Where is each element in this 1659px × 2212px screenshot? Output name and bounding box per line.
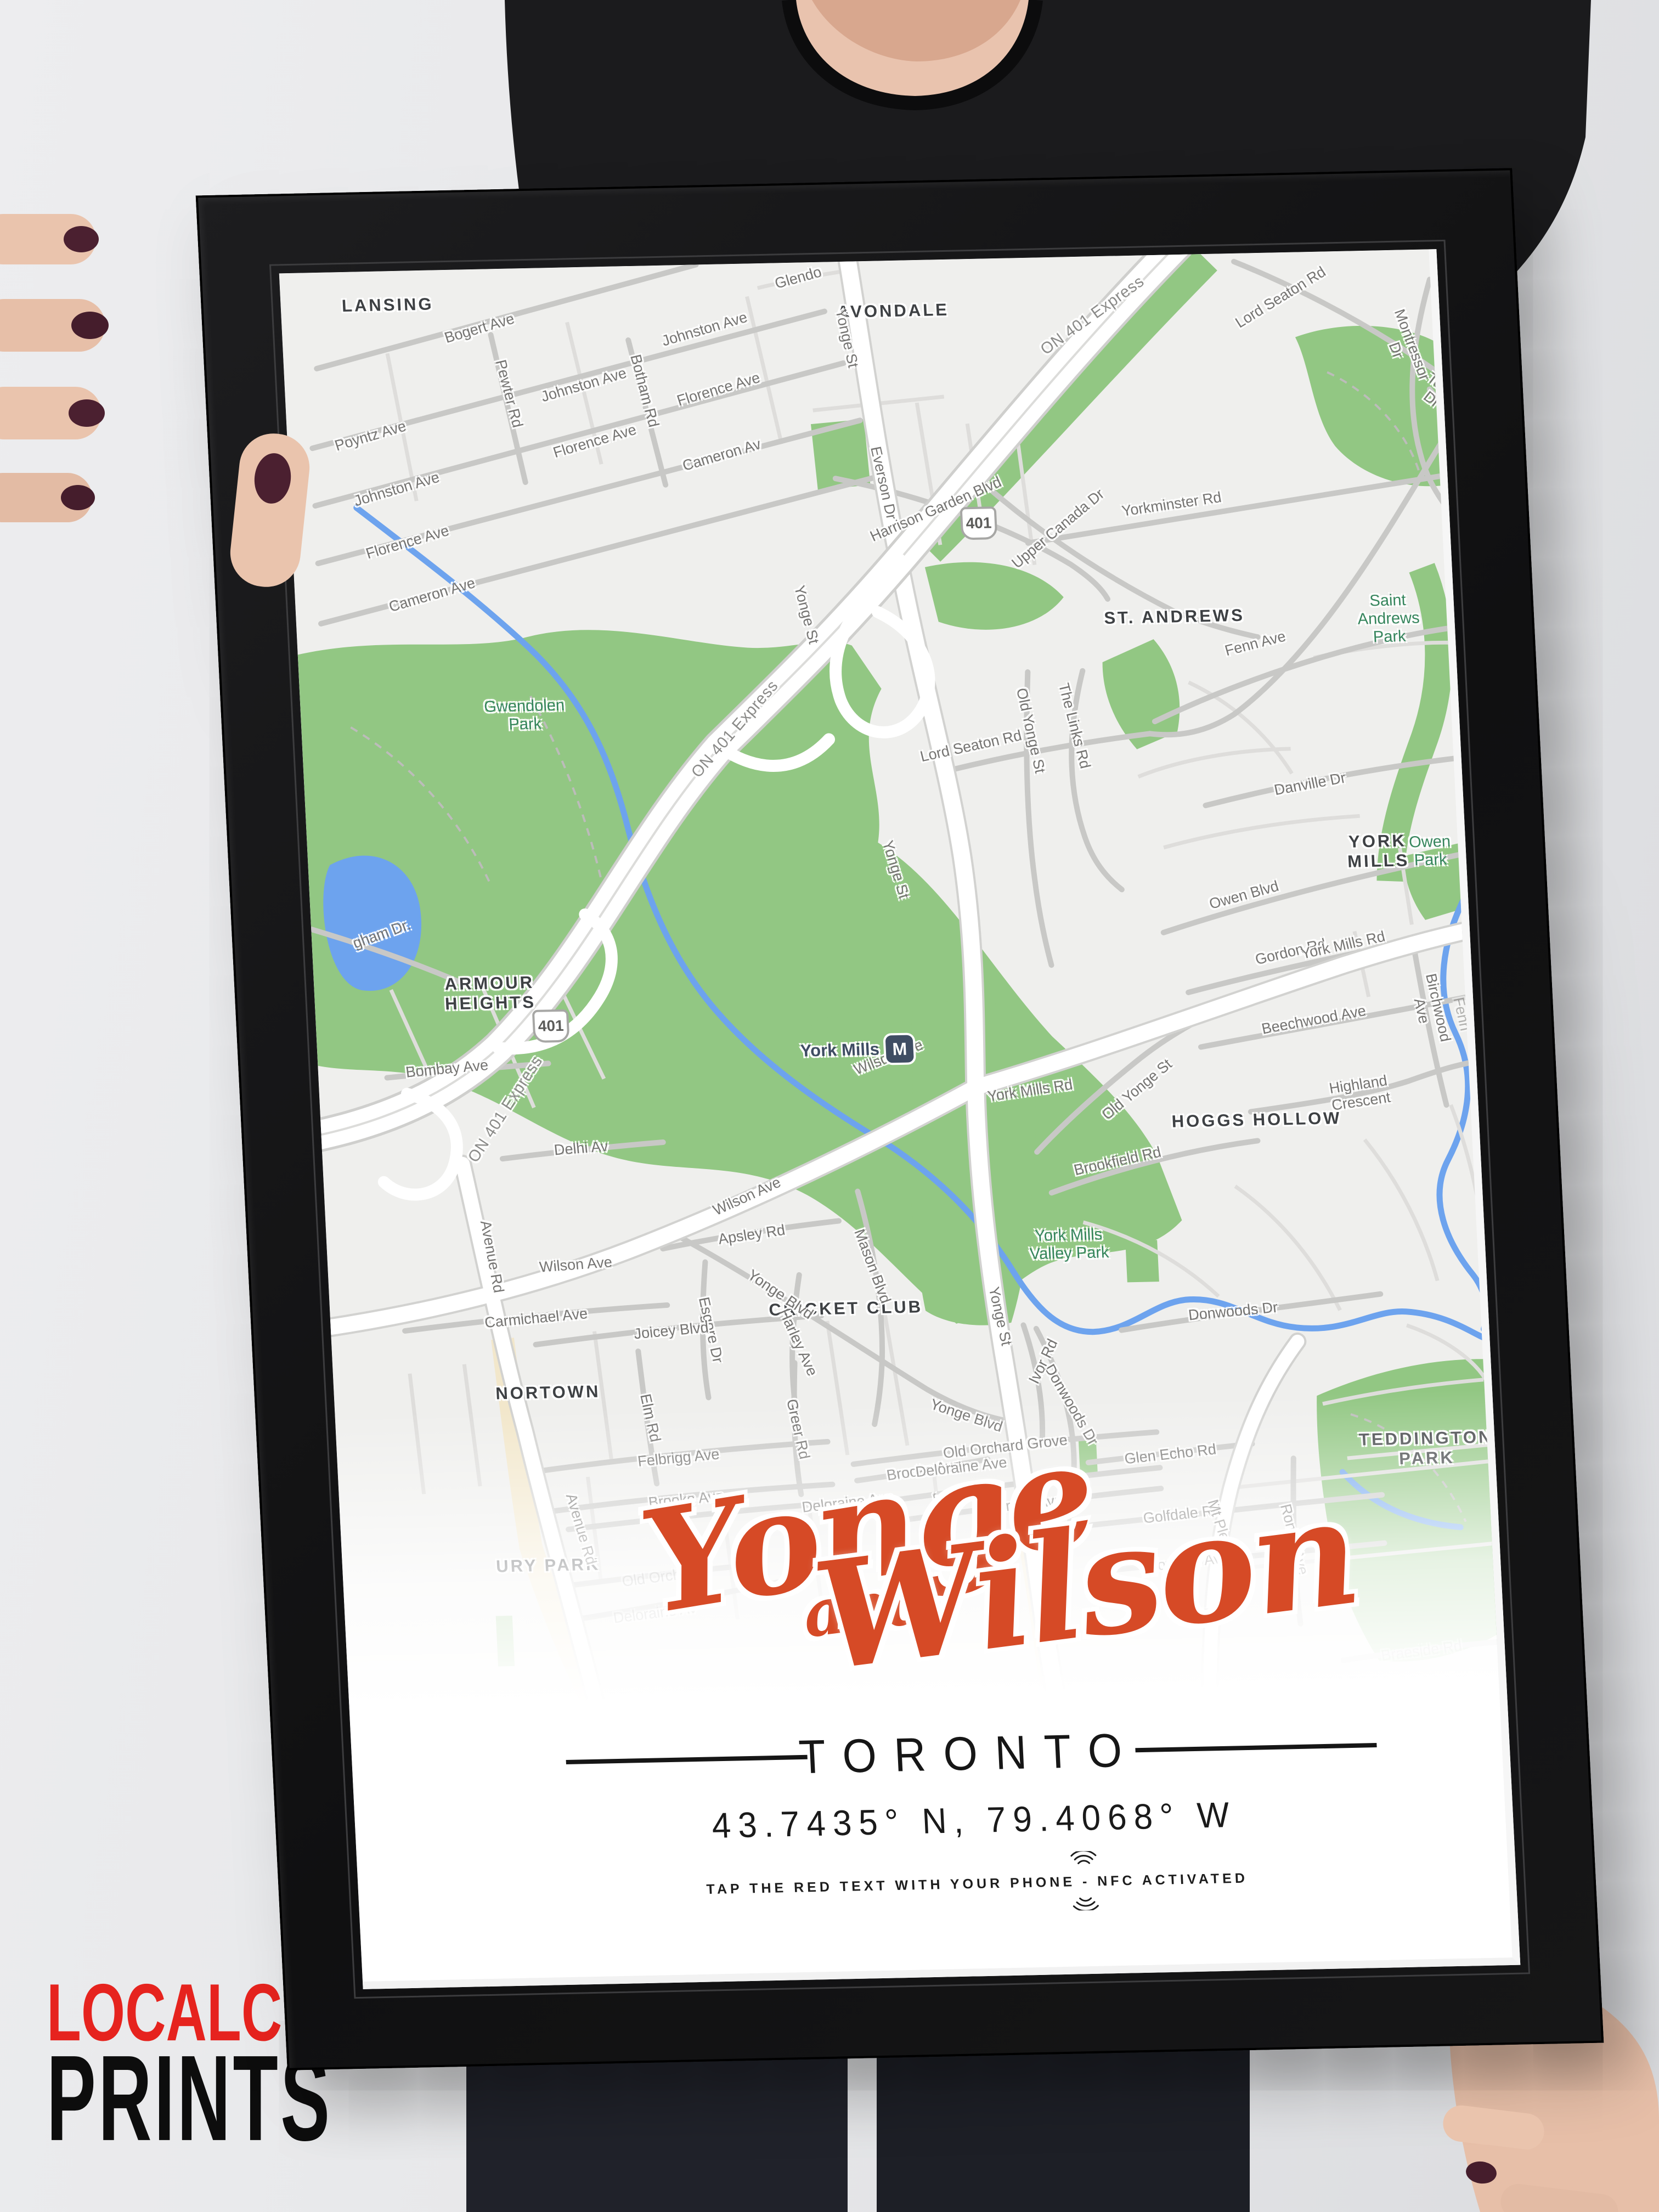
nfc-note: TAP THE RED TEXT WITH YOUR PHONE - NFC A… [706,1871,1249,1898]
coordinates-text: 43.7435° N, 79.4068° W [711,1795,1237,1847]
poster-paper: LANSINGAVONDALEST. ANDREWSYORK MILLSARMO… [279,249,1520,1989]
title-rule-right [1135,1743,1376,1752]
photo-scene: { "scene": { "logo": { "line1": "LOCALCI… [0,0,1659,2212]
title-rule-left [566,1755,808,1764]
city-title: TORONTO [798,1723,1141,1784]
nfc-icon [1068,1851,1099,1868]
fingernail [61,485,95,510]
fingernail [64,226,99,252]
nfc-icon [1070,1894,1101,1911]
poster-typography: Yonge and Wilson TORONTO 43.7435° N, 79.… [279,249,1520,1989]
fingernail [71,312,109,339]
left-hand [0,214,109,522]
framed-map-poster: LANSINGAVONDALEST. ANDREWSYORK MILLSARMO… [196,168,1604,2070]
fingernail [69,399,105,427]
